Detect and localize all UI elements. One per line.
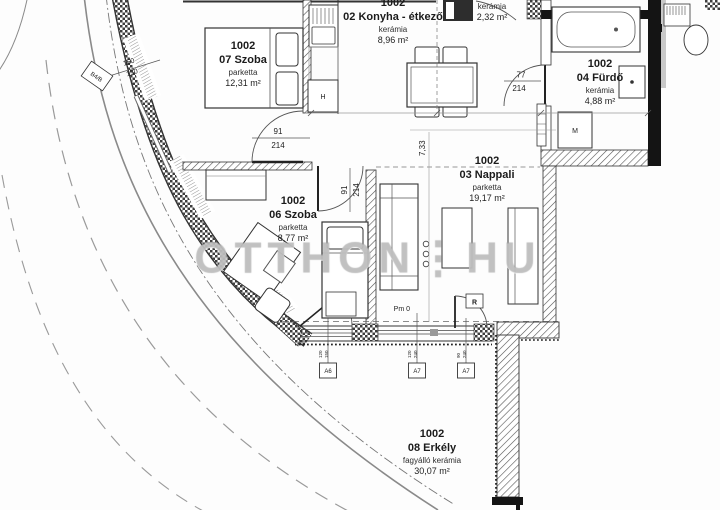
marker-a7b: A7 — [462, 369, 470, 375]
dim-bathdoor-height: 214 — [512, 84, 526, 93]
room-label-living: 1002 03 Nappali parketta 19,17 m² — [459, 155, 514, 204]
marker-a7a: A7 — [413, 369, 421, 375]
room07-finish: parketta — [219, 68, 267, 78]
room07-unit: 1002 — [219, 40, 267, 54]
balcony-finish: fagyálló kerámia — [403, 456, 461, 466]
room06-area: 8,77 m² — [269, 233, 317, 244]
kitchen-unit: 1002 — [343, 0, 443, 11]
hall-area: 2,32 m² — [477, 12, 508, 23]
dim-door06-height: 214 — [352, 183, 361, 197]
dim-door07-height: 214 — [271, 141, 285, 150]
dim-bathdoor-width: 77 — [517, 71, 526, 80]
kitchen-name: 02 Konyha - étkező — [343, 11, 443, 25]
sill3-a: 90 — [456, 352, 461, 358]
bath-unit: 1002 — [577, 58, 623, 72]
dim-pm0: Pm 0 — [394, 306, 410, 313]
living-area: 19,17 m² — [459, 193, 514, 204]
dim-living-width: 7,33 — [418, 140, 427, 156]
room-label-hall: kerámia 2,32 m² — [477, 2, 508, 23]
room07-area: 12,31 m² — [219, 78, 267, 89]
floor-plan-image: 91 214 91 214 77 214 7,33 Pm 0 150 130 B… — [0, 0, 720, 510]
sill2-b: 240 — [413, 350, 418, 358]
dim-door07-width: 91 — [274, 127, 283, 136]
bath-finish: kerámia — [577, 86, 623, 96]
bath-name: 04 Fürdő — [577, 72, 623, 86]
room06-name: 06 Szoba — [269, 209, 317, 223]
sill2-a: 120 — [407, 350, 412, 358]
hall-finish: kerámia — [477, 2, 508, 12]
kitchen-finish: kerámia — [343, 25, 443, 35]
room-label-kitchen: 1002 02 Konyha - étkező kerámia 8,96 m² — [343, 0, 443, 46]
room-label-bath: 1002 04 Fürdő kerámia 4,88 m² — [577, 58, 623, 107]
shutter-label: R — [472, 300, 477, 307]
sill1-a: 120 — [318, 350, 323, 358]
room07-name: 07 Szoba — [219, 54, 267, 68]
sill1-b: 150 — [324, 350, 329, 358]
opening-markers: A6 120 150 A7 120 240 A7 90 240 — [318, 313, 475, 378]
room06-finish: parketta — [269, 223, 317, 233]
watermark: OTTHON⋮HU — [194, 233, 541, 284]
kitchen-area: 8,96 m² — [343, 35, 443, 46]
room-label-balcony: 1002 08 Erkély fagyálló kerámia 30,07 m² — [403, 428, 461, 477]
fridge-label: H — [320, 94, 325, 101]
room06-unit: 1002 — [269, 195, 317, 209]
bath-area: 4,88 m² — [577, 96, 623, 107]
living-unit: 1002 — [459, 155, 514, 169]
living-name: 03 Nappali — [459, 169, 514, 183]
room-label-06-szoba: 1002 06 Szoba parketta 8,77 m² — [269, 195, 317, 244]
neighbor-fixtures — [664, 0, 720, 55]
dining-set — [407, 47, 477, 117]
balcony-name: 08 Erkély — [403, 442, 461, 456]
balcony-area: 30,07 m² — [403, 466, 461, 477]
balcony-unit: 1002 — [403, 428, 461, 442]
marker-a6: A6 — [324, 369, 332, 375]
sill3-b: 240 — [462, 350, 467, 358]
balcony-side-wall — [492, 322, 559, 510]
dim-door06-width: 91 — [340, 185, 349, 194]
room-label-07-szoba: 1002 07 Szoba parketta 12,31 m² — [219, 40, 267, 89]
washing-machine-label: M — [572, 128, 578, 135]
living-finish: parketta — [459, 183, 514, 193]
